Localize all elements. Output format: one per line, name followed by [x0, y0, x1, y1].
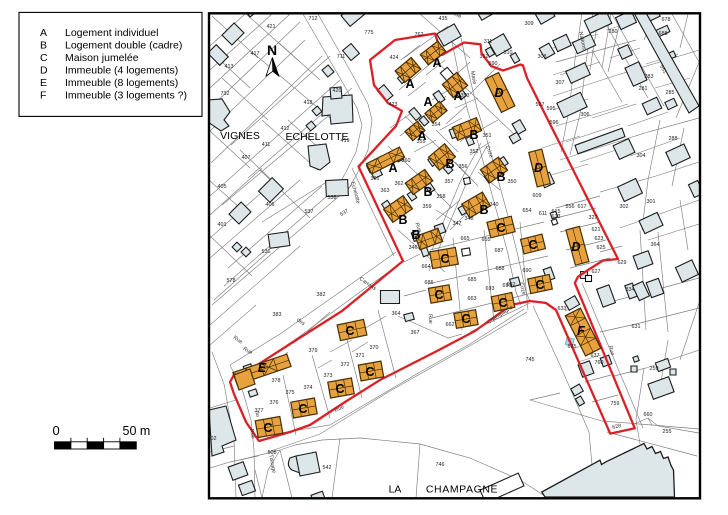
svg-text:Immeuble (8 logements): Immeuble (8 logements) [65, 77, 178, 89]
svg-text:435: 435 [439, 16, 448, 22]
svg-text:556: 556 [566, 204, 575, 210]
svg-text:407: 407 [242, 155, 251, 161]
svg-text:631: 631 [632, 324, 641, 330]
svg-text:537: 537 [305, 209, 314, 215]
svg-text:654: 654 [523, 208, 532, 214]
svg-text:421: 421 [267, 24, 276, 30]
svg-text:419: 419 [341, 138, 350, 144]
svg-text:C: C [263, 421, 272, 435]
svg-text:280: 280 [609, 29, 618, 35]
svg-text:354: 354 [432, 122, 441, 128]
svg-text:596: 596 [550, 120, 559, 126]
svg-text:363: 363 [381, 188, 390, 194]
svg-text:609: 609 [533, 193, 542, 199]
svg-text:625: 625 [597, 245, 606, 251]
svg-text:629: 629 [618, 260, 627, 266]
svg-text:746: 746 [436, 462, 445, 468]
svg-text:F: F [40, 89, 46, 101]
svg-text:C: C [496, 221, 505, 235]
svg-text:312: 312 [480, 54, 489, 60]
svg-text:340: 340 [490, 202, 499, 208]
svg-text:413: 413 [225, 64, 234, 70]
svg-text:633: 633 [558, 306, 567, 312]
svg-text:412: 412 [281, 126, 290, 132]
svg-text:660: 660 [644, 412, 653, 418]
svg-text:Logement double (cadre): Logement double (cadre) [65, 39, 182, 51]
svg-text:627: 627 [592, 269, 601, 275]
svg-text:775: 775 [365, 30, 374, 36]
svg-text:578: 578 [227, 278, 236, 284]
svg-text:405: 405 [218, 184, 227, 190]
svg-text:A: A [388, 161, 397, 175]
svg-text:617: 617 [578, 204, 587, 210]
svg-text:C: C [434, 288, 443, 302]
svg-text:C: C [461, 312, 470, 326]
svg-text:A: A [405, 77, 414, 91]
svg-text:356: 356 [459, 164, 468, 170]
svg-text:CHAMPAGNE: CHAMPAGNE [426, 484, 498, 496]
svg-text:D: D [534, 161, 543, 175]
svg-text:D: D [40, 64, 48, 76]
svg-text:334: 334 [626, 287, 635, 293]
svg-text:C: C [365, 365, 374, 379]
svg-text:538: 538 [328, 195, 337, 201]
svg-text:760: 760 [595, 360, 604, 366]
svg-text:ECHELOTTE: ECHELOTTE [285, 131, 348, 143]
svg-text:347: 347 [453, 221, 462, 227]
svg-text:382: 382 [317, 292, 326, 298]
svg-text:711: 711 [337, 54, 346, 60]
svg-text:355: 355 [417, 139, 426, 145]
svg-text:B: B [445, 157, 454, 171]
svg-text:371: 371 [356, 353, 365, 359]
svg-text:635: 635 [568, 344, 577, 350]
svg-text:692: 692 [507, 282, 516, 288]
svg-text:361: 361 [371, 176, 380, 182]
svg-text:759: 759 [611, 401, 620, 407]
svg-text:307: 307 [556, 80, 565, 86]
svg-text:301: 301 [647, 199, 656, 205]
svg-text:308: 308 [538, 54, 547, 60]
svg-text:690: 690 [523, 268, 532, 274]
svg-text:N: N [267, 42, 277, 58]
svg-text:346: 346 [409, 245, 418, 251]
svg-text:655: 655 [482, 237, 491, 243]
svg-text:C: C [345, 324, 354, 338]
svg-text:745: 745 [526, 357, 535, 363]
svg-text:686: 686 [425, 280, 434, 286]
svg-text:Logement individuel: Logement individuel [65, 27, 158, 39]
svg-text:LA: LA [389, 484, 402, 496]
svg-text:590: 590 [489, 61, 498, 67]
svg-text:du: du [254, 410, 261, 417]
svg-text:306: 306 [581, 112, 590, 118]
svg-text:637: 637 [591, 353, 600, 359]
svg-text:417: 417 [251, 51, 260, 57]
svg-text:360: 360 [402, 158, 411, 164]
svg-text:281: 281 [639, 86, 648, 92]
svg-text:E: E [40, 77, 47, 89]
svg-text:418: 418 [304, 100, 313, 106]
svg-text:353: 353 [461, 93, 470, 99]
svg-text:367: 367 [411, 330, 420, 336]
svg-text:359: 359 [423, 204, 432, 210]
svg-text:732: 732 [221, 91, 230, 97]
svg-text:50 m: 50 m [123, 424, 151, 438]
svg-text:611: 611 [539, 211, 548, 217]
svg-text:F: F [577, 324, 585, 338]
svg-text:C: C [40, 52, 48, 64]
svg-text:C: C [440, 252, 449, 266]
svg-text:D: D [571, 240, 580, 254]
svg-text:621: 621 [592, 227, 601, 233]
svg-text:348: 348 [465, 216, 474, 222]
svg-text:364: 364 [392, 311, 401, 317]
svg-text:259: 259 [650, 366, 659, 372]
svg-text:687: 687 [495, 248, 504, 254]
svg-text:378: 378 [272, 378, 281, 384]
svg-text:Maison jumelée: Maison jumelée [65, 52, 139, 64]
svg-text:B: B [40, 39, 47, 51]
svg-text:362: 362 [395, 181, 404, 187]
svg-text:B: B [398, 213, 407, 227]
svg-text:664: 664 [422, 264, 431, 270]
svg-text:352: 352 [470, 149, 479, 155]
svg-text:424: 424 [390, 55, 399, 61]
svg-text:255: 255 [663, 429, 672, 435]
svg-text:406: 406 [266, 202, 275, 208]
svg-text:Immeuble (4 logements): Immeuble (4 logements) [65, 64, 178, 76]
svg-text:420: 420 [333, 88, 342, 94]
svg-text:536: 536 [262, 249, 271, 255]
svg-text:411: 411 [262, 142, 271, 148]
svg-text:542: 542 [323, 465, 332, 471]
svg-text:357: 357 [445, 179, 454, 185]
svg-text:351: 351 [483, 133, 492, 139]
svg-text:350: 350 [508, 179, 517, 185]
svg-text:285: 285 [666, 90, 675, 96]
svg-text:688: 688 [659, 31, 668, 37]
svg-text:A: A [40, 27, 47, 39]
svg-text:379: 379 [309, 348, 318, 354]
svg-text:C: C [528, 238, 537, 252]
svg-text:597: 597 [536, 102, 545, 108]
svg-text:B: B [496, 170, 505, 184]
svg-text:678: 678 [662, 17, 671, 23]
svg-text:401: 401 [218, 222, 227, 228]
svg-text:Rue: Rue [427, 314, 434, 324]
svg-text:327: 327 [589, 215, 598, 221]
svg-text:693: 693 [486, 286, 495, 292]
svg-text:665: 665 [461, 236, 470, 242]
svg-text:376: 376 [270, 400, 279, 406]
svg-text:D: D [494, 86, 503, 100]
svg-text:663: 663 [468, 296, 477, 302]
svg-text:B: B [423, 185, 432, 199]
svg-text:E: E [258, 361, 267, 375]
svg-text:662: 662 [446, 322, 455, 328]
svg-text:B: B [469, 128, 478, 142]
svg-text:373: 373 [324, 373, 333, 379]
svg-text:370: 370 [370, 345, 379, 351]
svg-text:C: C [335, 382, 344, 396]
svg-text:A: A [423, 95, 432, 109]
svg-text:423: 423 [389, 102, 398, 108]
svg-text:283: 283 [645, 74, 654, 80]
svg-text:311: 311 [484, 39, 493, 45]
svg-text:VIGNES: VIGNES [220, 130, 260, 142]
svg-text:304: 304 [637, 153, 646, 159]
svg-text:Immeuble (3 logements ?): Immeuble (3 logements ?) [65, 89, 187, 101]
svg-text:374: 374 [304, 385, 313, 391]
svg-text:C: C [535, 278, 544, 292]
svg-text:375: 375 [286, 390, 295, 396]
svg-text:288: 288 [669, 136, 678, 142]
svg-text:595: 595 [547, 106, 556, 112]
svg-text:B: B [479, 203, 488, 217]
svg-text:364: 364 [651, 242, 660, 248]
svg-text:0: 0 [53, 423, 60, 438]
svg-text:383: 383 [273, 312, 282, 318]
svg-text:613: 613 [552, 214, 561, 220]
svg-text:712: 712 [309, 16, 318, 22]
svg-text:309: 309 [525, 21, 534, 27]
svg-text:C: C [298, 402, 307, 416]
svg-text:688: 688 [496, 266, 505, 272]
svg-text:A: A [432, 56, 441, 70]
svg-text:762: 762 [415, 32, 424, 38]
svg-text:372: 372 [341, 362, 350, 368]
svg-text:302: 302 [620, 204, 629, 210]
svg-text:358: 358 [437, 194, 446, 200]
svg-text:685: 685 [468, 277, 477, 283]
svg-text:623: 623 [595, 236, 604, 242]
svg-text:310: 310 [504, 50, 513, 56]
